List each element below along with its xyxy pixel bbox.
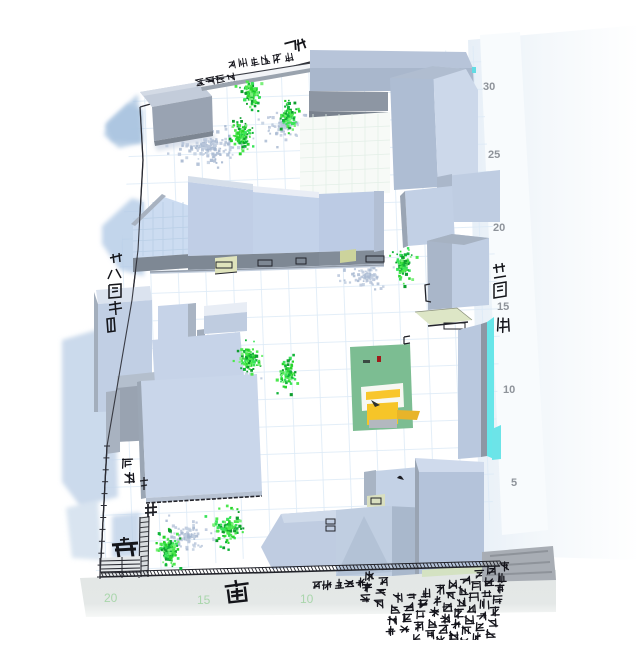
svg-text:15: 15 (497, 301, 509, 313)
svg-text:25: 25 (488, 149, 500, 161)
svg-text:15: 15 (197, 593, 211, 607)
svg-text:20: 20 (493, 222, 505, 234)
svg-text:30: 30 (483, 81, 495, 93)
svg-text:5: 5 (511, 477, 517, 489)
svg-text:10: 10 (300, 592, 314, 606)
svg-text:10: 10 (503, 384, 515, 396)
svg-text:20: 20 (104, 591, 118, 605)
